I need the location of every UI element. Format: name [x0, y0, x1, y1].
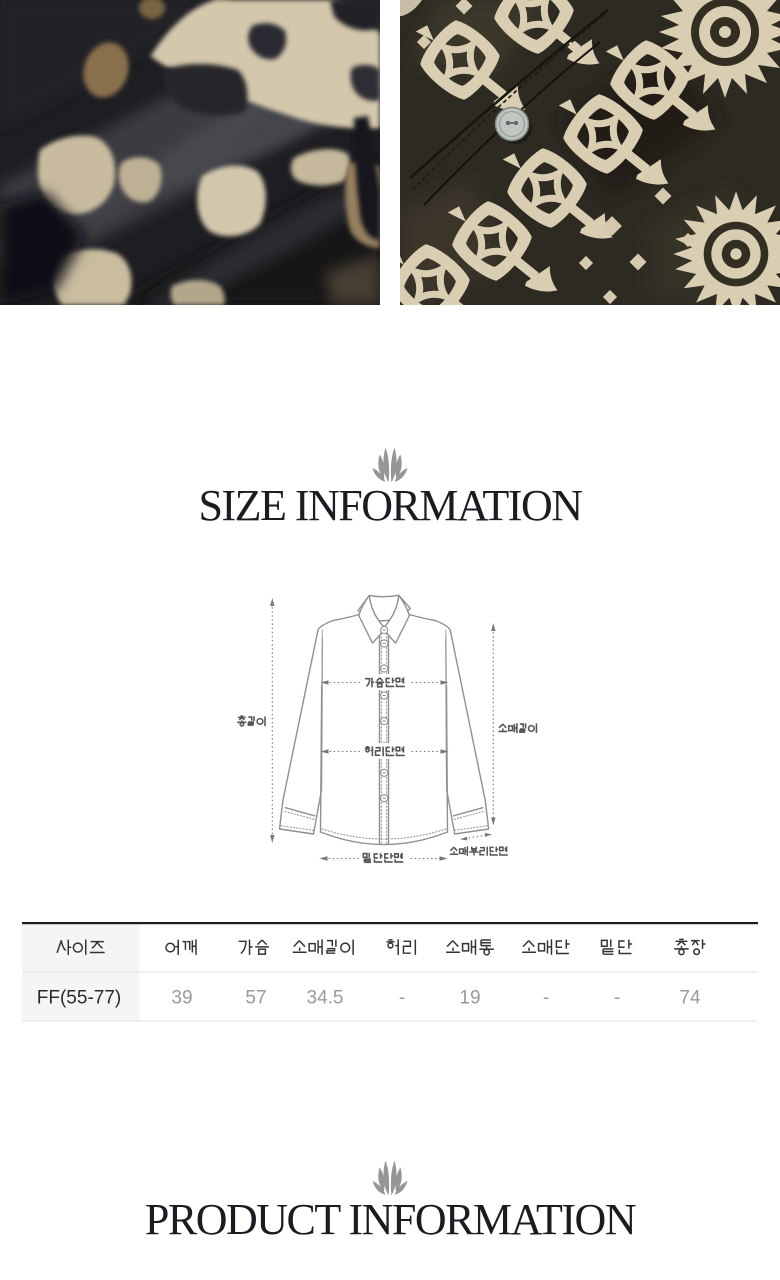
svg-text:-: - — [614, 988, 620, 1009]
svg-text:39: 39 — [171, 988, 192, 1009]
svg-text:-: - — [399, 988, 405, 1009]
svg-text:FF(55-77): FF(55-77) — [37, 988, 121, 1009]
svg-text:74: 74 — [679, 988, 701, 1009]
svg-text:19: 19 — [459, 988, 480, 1009]
svg-text:57: 57 — [245, 988, 266, 1009]
svg-text:34.5: 34.5 — [307, 988, 344, 1009]
svg-text:-: - — [543, 988, 549, 1009]
